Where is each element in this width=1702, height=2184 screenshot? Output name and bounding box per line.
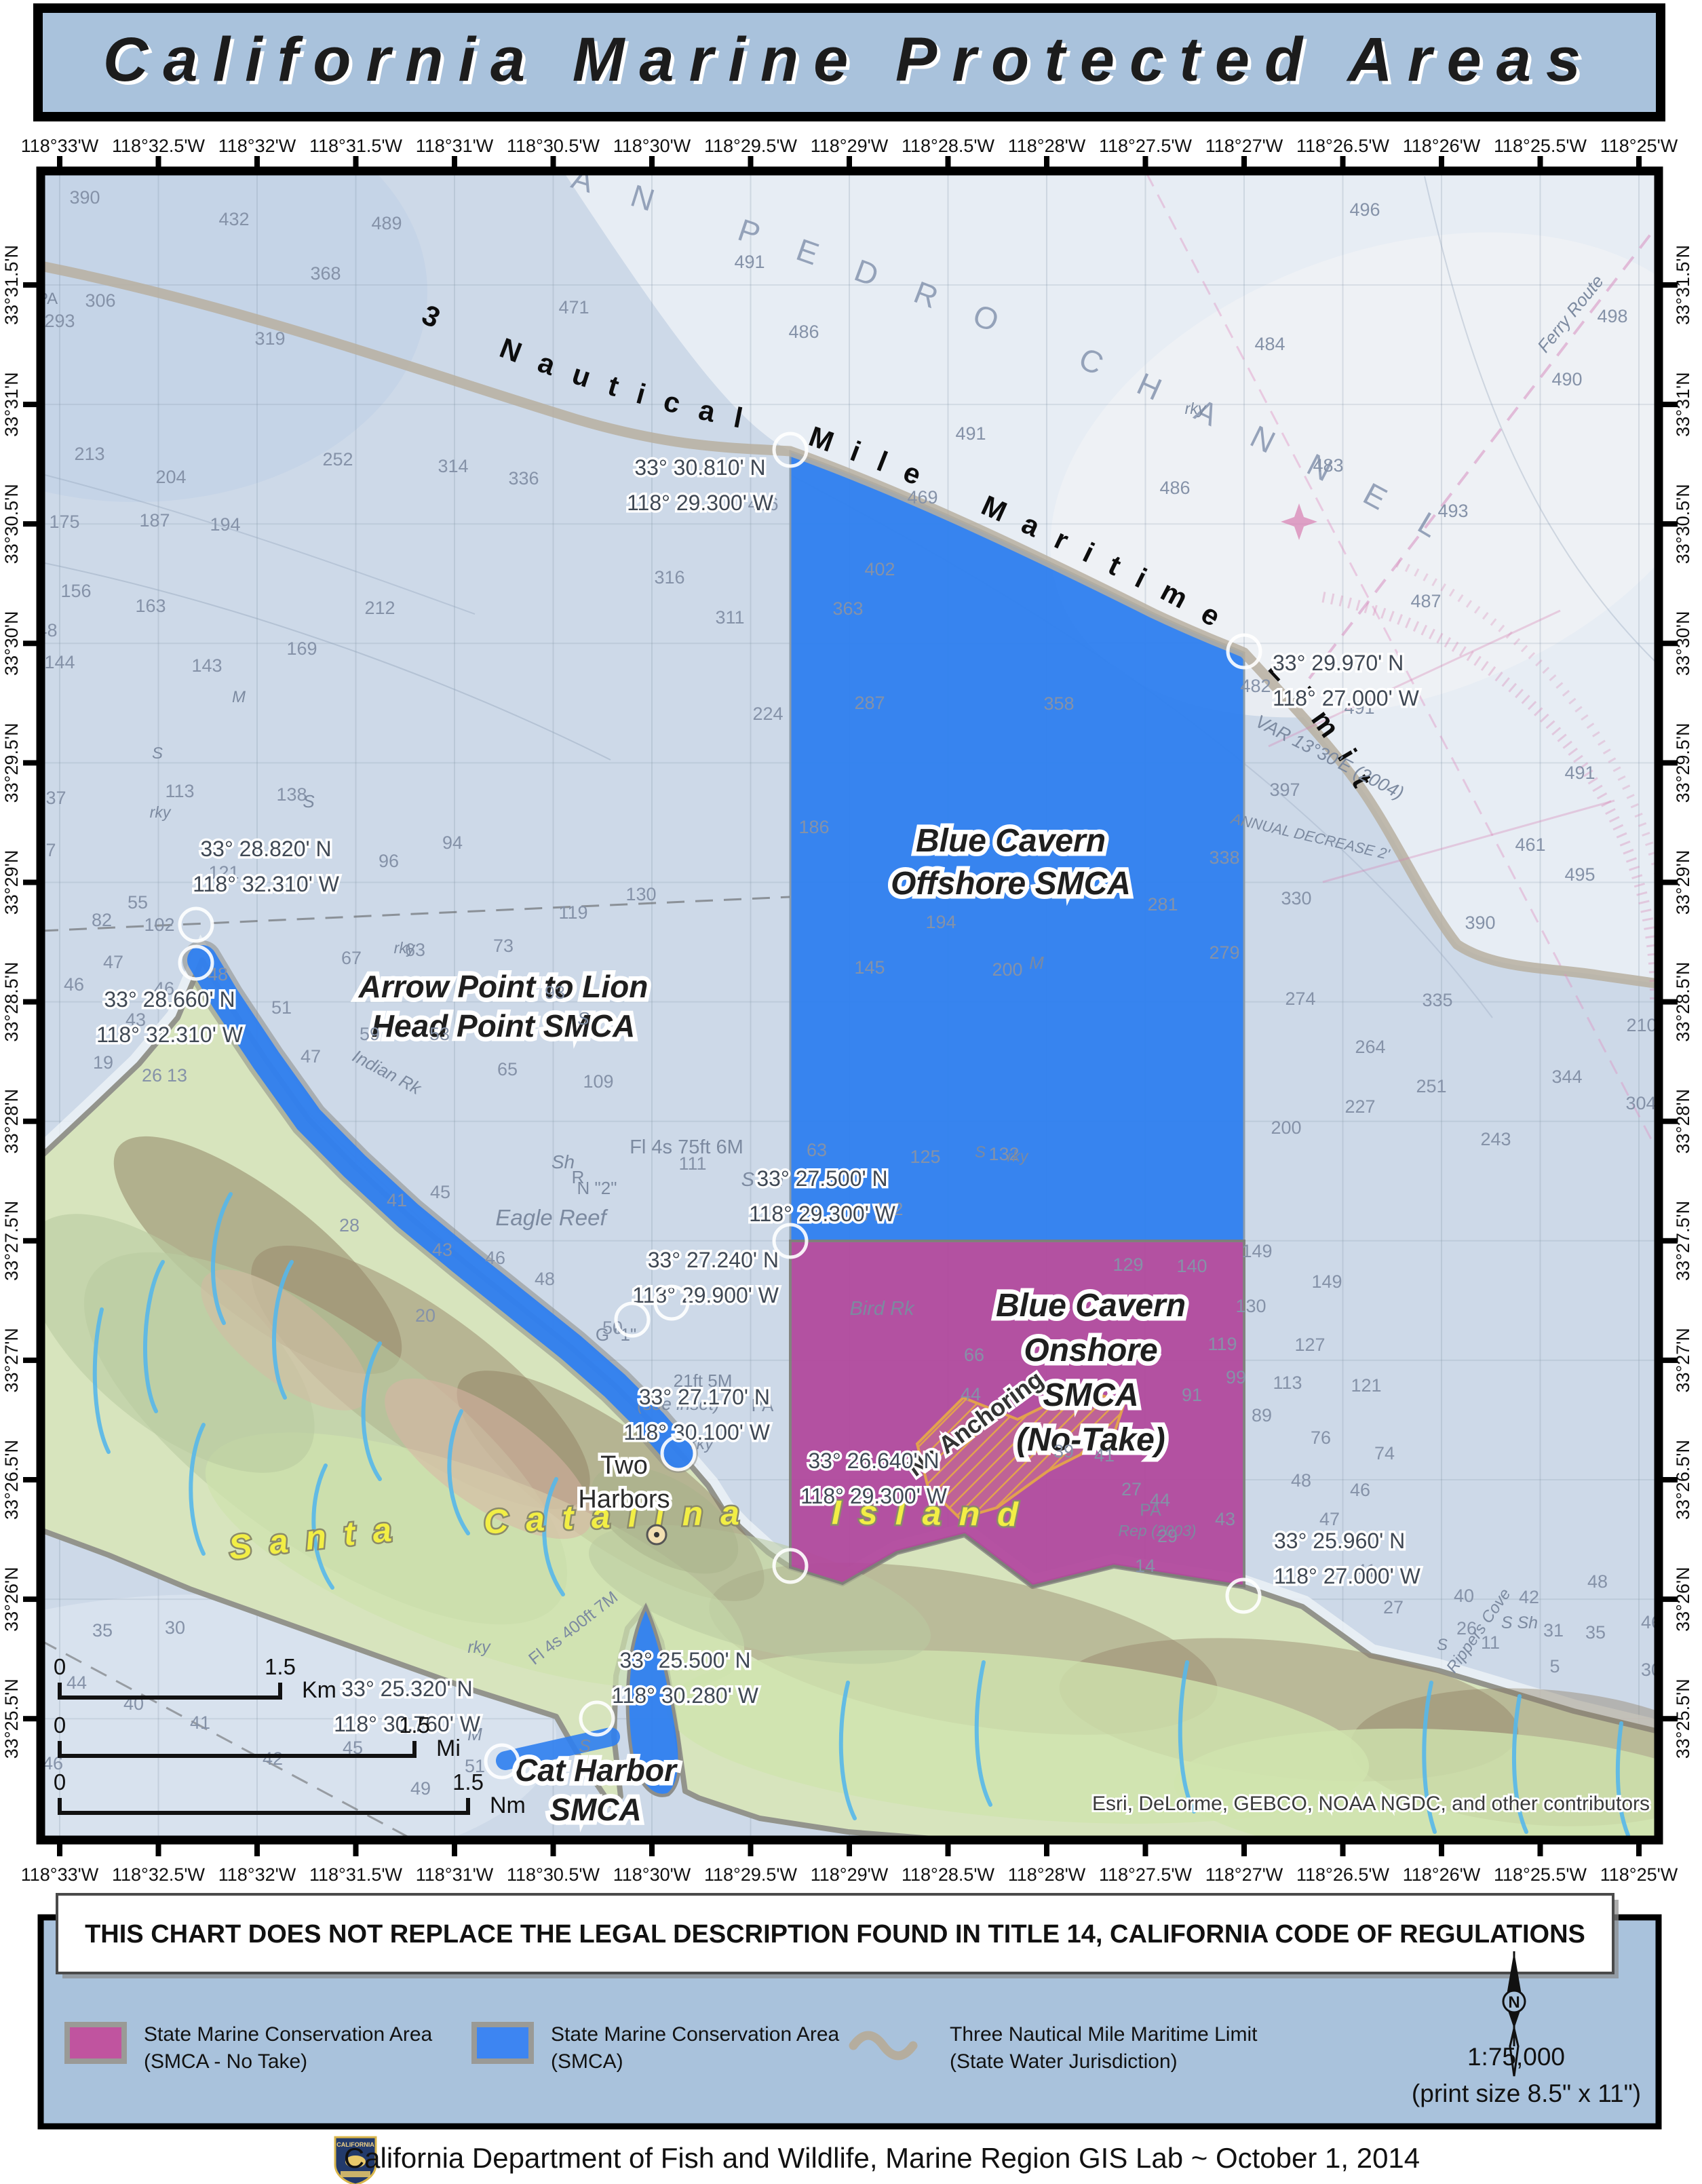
sounding-label: 486 <box>1159 478 1190 498</box>
chart-note-label: S <box>1437 1636 1448 1654</box>
sounding-label: 335 <box>1422 990 1452 1010</box>
lon-tick-top <box>1636 156 1642 172</box>
chart-note-label: S <box>579 1736 591 1756</box>
sounding-label: 99 <box>1226 1367 1246 1387</box>
sounding-label: 287 <box>854 693 885 713</box>
sounding-label: 19 <box>93 1052 113 1073</box>
sounding-label: 31 <box>1543 1620 1564 1641</box>
sounding-label: 53 <box>429 1024 450 1044</box>
sounding-label: 493 <box>1437 501 1468 521</box>
scalebar-value-label: 1.5 <box>399 1712 430 1738</box>
legend-item2-line1: State Marine Conservation Area <box>551 2023 840 2046</box>
lat-tick-left <box>23 760 41 765</box>
sounding-label: 130 <box>625 884 656 904</box>
smca-swatch-icon <box>477 2027 528 2058</box>
sounding-label: 293 <box>44 311 75 331</box>
sounding-label: 91 <box>1182 1385 1202 1405</box>
sounding-label: 316 <box>654 567 684 588</box>
sounding-label: 461 <box>1515 835 1545 855</box>
lat-tick-right <box>1660 282 1678 288</box>
sounding-label: 127 <box>1294 1335 1325 1355</box>
lon-tick-bottom <box>551 1839 556 1856</box>
sounding-label: 344 <box>1551 1067 1582 1087</box>
sounding-label: 41 <box>387 1190 407 1210</box>
sounding-label: 274 <box>1285 989 1315 1009</box>
lon-label-top: 118°25'W <box>1600 136 1678 156</box>
chart-note-label: Fl 4s 75ft 6M <box>630 1136 743 1158</box>
chart-note-label: Eagle Reef <box>495 1205 608 1230</box>
lon-tick-bottom <box>57 1839 62 1856</box>
sounding-label: 46 <box>485 1248 505 1268</box>
lon-label-top: 118°32'W <box>218 136 296 156</box>
lon-tick-bottom <box>254 1839 260 1856</box>
scalebar-value-label: 1.5 <box>265 1654 296 1679</box>
lon-label-bottom: 118°28'W <box>1008 1864 1086 1885</box>
lon-label-top: 118°30'W <box>613 136 691 156</box>
scalebar-unit-label: Km <box>302 1677 336 1703</box>
chart-note-label: S <box>975 1143 986 1162</box>
chart-note-label: rky <box>394 939 416 957</box>
lat-label-left: 33°26.5'N <box>1 1440 22 1520</box>
lon-label-bottom: 118°26'W <box>1403 1864 1481 1885</box>
offshore-label-line1: Blue Cavern <box>916 823 1106 859</box>
legend-item3-line1: Three Nautical Mile Maritime Limit <box>950 2023 1258 2046</box>
lat-tick-right <box>1660 880 1678 885</box>
sounding-label: 51 <box>271 997 292 1018</box>
lon-label-bottom: 118°27'W <box>1205 1864 1283 1885</box>
lon-label-top: 118°29.5'W <box>704 136 798 156</box>
sounding-label: 47 <box>1319 1509 1340 1529</box>
sounding-label: 145 <box>854 957 885 978</box>
sounding-label: 358 <box>1043 693 1074 714</box>
sounding-label: 306 <box>85 290 115 311</box>
scalebar-value-label: 1.5 <box>452 1769 484 1795</box>
chart-note-label: S <box>152 744 163 763</box>
lon-tick-bottom <box>1636 1839 1642 1856</box>
lon-tick-top <box>1340 156 1346 172</box>
sounding-label: 264 <box>1355 1037 1385 1057</box>
legend-item1-line2: (SMCA - No Take) <box>144 2050 307 2073</box>
sounding-label: 281 <box>1147 894 1178 915</box>
lon-tick-top <box>847 156 852 172</box>
lon-label-top: 118°26.5'W <box>1296 136 1390 156</box>
sounding-label: 194 <box>210 514 240 535</box>
lat-tick-right <box>1660 640 1678 646</box>
lon-tick-bottom <box>1340 1839 1346 1856</box>
sounding-label: 336 <box>508 468 539 488</box>
lon-tick-bottom <box>353 1839 359 1856</box>
lon-tick-top <box>1044 156 1049 172</box>
sounding-label: 30 <box>165 1617 185 1638</box>
lat-label-left: 33°29.5'N <box>1 723 22 803</box>
lat-label-left: 33°30'N <box>1 611 22 676</box>
sounding-label: 42 <box>263 1748 283 1769</box>
sounding-label: 67 <box>341 948 362 968</box>
sounding-label: 397 <box>1269 780 1300 800</box>
title-bar: California Marine Protected Areas Califo… <box>38 8 1661 117</box>
sounding-label: 44 <box>961 1384 981 1404</box>
sounding-label: 27 <box>1121 1479 1142 1499</box>
sounding-label: 319 <box>254 328 285 349</box>
sounding-label: 27 <box>1383 1597 1404 1617</box>
sounding-label: 102 <box>144 915 174 935</box>
sounding-label: 338 <box>1209 847 1239 868</box>
sounding-label: 194 <box>925 912 956 932</box>
lon-label-top: 118°28'W <box>1008 136 1086 156</box>
sounding-label: 113 <box>1273 1373 1302 1393</box>
sounding-label: 491 <box>955 423 986 444</box>
sounding-label: 490 <box>1551 369 1582 389</box>
sounding-label: 46 <box>1350 1480 1370 1500</box>
scalebar-unit-label: Nm <box>490 1793 526 1818</box>
lon-tick-top <box>452 156 457 172</box>
chart-note-label: rky <box>467 1638 491 1657</box>
lat-label-left: 33°26'N <box>1 1567 22 1632</box>
sounding-label: 252 <box>322 449 353 470</box>
sounding-label: 89 <box>1252 1405 1272 1425</box>
sounding-label: 66 <box>964 1345 984 1365</box>
sounding-label: 163 <box>135 596 166 616</box>
sounding-label: 35 <box>1585 1622 1606 1643</box>
lat-tick-left <box>23 402 41 407</box>
lon-tick-top <box>1439 156 1444 172</box>
sounding-label: 119 <box>558 902 587 923</box>
lon-label-top: 118°33'W <box>21 136 99 156</box>
arrow-point-label-line1: Arrow Point to Lion <box>358 969 649 1004</box>
lon-tick-top <box>1143 156 1148 172</box>
sounding-label: 48 <box>535 1269 555 1289</box>
chart-note-label: R <box>572 1167 585 1187</box>
legend-item3-line2: (State Water Jurisdiction) <box>950 2050 1178 2073</box>
lat-label-left: 33°27.5'N <box>1 1201 22 1281</box>
sounding-label: 47 <box>301 1046 321 1067</box>
legend-item2-line2: (SMCA) <box>551 2050 623 2073</box>
sounding-label: 121 <box>1351 1375 1381 1396</box>
lon-label-bottom: 118°25.5'W <box>1494 1864 1587 1885</box>
sounding-label: 491 <box>1564 763 1595 783</box>
sounding-label: 41 <box>1094 1445 1115 1465</box>
lon-tick-bottom <box>1439 1839 1444 1856</box>
sounding-label: 200 <box>992 959 1022 980</box>
sounding-label: 28 <box>339 1215 360 1235</box>
lat-tick-right <box>1660 1358 1678 1363</box>
lon-label-bottom: 118°32.5'W <box>112 1864 206 1885</box>
sounding-label: 129 <box>1113 1254 1143 1275</box>
sounding-label: 495 <box>1564 864 1595 885</box>
sounding-label: 471 <box>558 297 589 318</box>
attribution-label: Esri, DeLorme, GEBCO, NOAA NGDC, and oth… <box>1092 1793 1650 1815</box>
lat-tick-left <box>23 521 41 526</box>
sounding-label: 5 <box>1549 1656 1560 1677</box>
sounding-label: 330 <box>1281 888 1311 908</box>
lat-label-left: 33°28'N <box>1 1089 22 1154</box>
sounding-label: 20 <box>415 1305 436 1326</box>
sounding-label: 59 <box>360 1024 380 1044</box>
chart-note-label: M <box>1029 953 1044 973</box>
sounding-label: 204 <box>155 467 186 487</box>
sounding-label: 149 <box>1241 1241 1272 1261</box>
lat-tick-left <box>23 880 41 885</box>
lon-tick-top <box>156 156 161 172</box>
lon-tick-top <box>649 156 655 172</box>
sounding-label: 63 <box>807 1140 827 1160</box>
sounding-label: 26 <box>142 1065 162 1086</box>
lon-tick-top <box>353 156 359 172</box>
lon-label-top: 118°29'W <box>811 136 889 156</box>
sounding-label: 49 <box>410 1778 431 1799</box>
lon-tick-bottom <box>452 1839 457 1856</box>
scalebar-unit-label: Mi <box>436 1736 461 1761</box>
lon-label-bottom: 118°31'W <box>416 1864 494 1885</box>
lon-label-bottom: 118°29'W <box>811 1864 889 1885</box>
lat-tick-right <box>1660 402 1678 407</box>
sounding-label: 143 <box>191 655 222 676</box>
lat-label-left: 33°30.5'N <box>1 484 22 564</box>
sounding-label: 76 <box>1311 1428 1331 1448</box>
legend-panel: THIS CHART DOES NOT REPLACE THE LEGAL DE… <box>41 1894 1659 2126</box>
sounding-label: 109 <box>583 1071 613 1092</box>
onshore-label-line1: Blue Cavern <box>996 1288 1186 1324</box>
sounding-label: 200 <box>1271 1117 1301 1138</box>
chart-note-label: S Sh <box>1501 1613 1538 1632</box>
lon-tick-bottom <box>946 1839 951 1856</box>
chart-note-label: Rep (2003) <box>1118 1522 1196 1539</box>
sounding-label: 482 <box>1240 676 1271 696</box>
sounding-label: 487 <box>1410 591 1441 611</box>
sounding-label: 119 <box>1207 1334 1237 1354</box>
lon-tick-top <box>1538 156 1543 172</box>
sounding-label: 489 <box>371 213 402 233</box>
mpa-chart-page: California Marine Protected Areas Califo… <box>0 0 1702 2184</box>
offshore-label-line2: Offshore SMCA <box>891 866 1131 902</box>
lon-tick-bottom <box>748 1839 754 1856</box>
sounding-label: 390 <box>1465 913 1495 933</box>
sounding-label: 14 <box>1135 1556 1155 1576</box>
lon-label-top: 118°27.5'W <box>1099 136 1193 156</box>
sounding-label: 44 <box>66 1672 87 1693</box>
lon-tick-bottom <box>649 1839 655 1856</box>
lon-label-bottom: 118°30.5'W <box>507 1864 600 1885</box>
lat-tick-left <box>23 1596 41 1602</box>
lat-label-left: 33°31'N <box>1 372 22 437</box>
lon-label-bottom: 118°25'W <box>1600 1864 1678 1885</box>
marine-protected-areas-map: California Marine Protected Areas Califo… <box>0 0 1702 2184</box>
lon-label-top: 118°31'W <box>416 136 494 156</box>
cat-harbor-label-line2: SMCA <box>549 1792 641 1827</box>
sounding-label: 213 <box>74 444 104 464</box>
chart-note-label: Bird Rk <box>849 1298 915 1320</box>
sounding-label: 368 <box>310 263 341 284</box>
sounding-label: 224 <box>752 704 783 724</box>
lon-label-bottom: 118°30'W <box>613 1864 691 1885</box>
sounding-label: 491 <box>734 252 765 272</box>
sounding-label: 55 <box>128 892 148 913</box>
sounding-label: 483 <box>1313 455 1343 476</box>
chart-note-label: PA <box>1140 1501 1161 1520</box>
sounding-label: 144 <box>44 652 75 672</box>
lon-tick-top <box>551 156 556 172</box>
lon-tick-bottom <box>1538 1839 1543 1856</box>
lon-tick-top <box>1241 156 1247 172</box>
chart-note-label: rky <box>150 803 172 821</box>
sounding-label: 47 <box>103 952 123 972</box>
sounding-label: 96 <box>379 851 399 871</box>
lon-label-bottom: 118°28.5'W <box>902 1864 995 1885</box>
sounding-label: 311 <box>715 607 744 628</box>
sounding-label: 35 <box>92 1620 113 1641</box>
lon-tick-bottom <box>1143 1839 1148 1856</box>
sounding-label: 187 <box>139 510 170 531</box>
sounding-label: 156 <box>60 581 91 601</box>
sounding-label: 498 <box>1597 306 1627 326</box>
town-symbol-dot <box>654 1532 659 1537</box>
footer: CALIFORNIA California Department of Fish… <box>335 2137 1420 2184</box>
lat-tick-right <box>1660 521 1678 526</box>
sounding-label: 486 <box>788 322 819 342</box>
cat-harbor-label-line1: Cat Harbor <box>515 1752 678 1788</box>
lon-tick-bottom <box>156 1839 161 1856</box>
lat-tick-right <box>1660 1238 1678 1244</box>
sounding-label: 39 <box>1053 1441 1074 1461</box>
chart-note-label: S <box>303 791 315 811</box>
sounding-label: 82 <box>92 910 112 930</box>
sounding-label: 125 <box>910 1147 940 1167</box>
sounding-label: 169 <box>286 638 317 659</box>
lat-label-left: 33°31.5'N <box>1 245 22 325</box>
page-title: California Marine Protected Areas <box>103 25 1595 94</box>
lat-tick-right <box>1660 999 1678 1005</box>
lon-label-top: 118°31.5'W <box>309 136 403 156</box>
lon-label-top: 118°27'W <box>1205 136 1283 156</box>
onshore-label-line2: Onshore <box>1024 1333 1157 1368</box>
lat-tick-left <box>23 640 41 646</box>
sounding-label: 40 <box>1454 1586 1474 1606</box>
two-harbors-line2: Harbors <box>578 1485 670 1514</box>
lon-label-bottom: 118°29.5'W <box>704 1864 798 1885</box>
map-scale-text: 1:75,000 <box>1467 2043 1565 2071</box>
lon-label-top: 118°26'W <box>1403 136 1481 156</box>
scalebar-zero-label: 0 <box>54 1712 66 1738</box>
scalebar-zero-label: 0 <box>54 1769 66 1795</box>
sounding-label: 304 <box>1625 1093 1656 1113</box>
lat-tick-right <box>1660 1477 1678 1482</box>
chart-note-label: rky <box>1185 400 1207 417</box>
lon-label-top: 118°30.5'W <box>507 136 600 156</box>
lat-tick-left <box>23 1238 41 1244</box>
lon-label-bottom: 118°32'W <box>218 1864 296 1885</box>
lat-tick-left <box>23 999 41 1005</box>
sounding-label: 113 <box>165 781 194 801</box>
smca-no-take-swatch-icon <box>70 2027 121 2058</box>
sounding-label: 496 <box>1349 199 1380 220</box>
sounding-label: 243 <box>1480 1129 1511 1149</box>
sounding-label: 74 <box>1374 1443 1395 1463</box>
legend-item1-line1: State Marine Conservation Area <box>144 2023 433 2046</box>
lon-label-top: 118°25.5'W <box>1494 136 1587 156</box>
lon-tick-top <box>946 156 951 172</box>
lat-label-left: 33°27'N <box>1 1328 22 1393</box>
sounding-label: 94 <box>442 832 463 853</box>
lon-tick-bottom <box>1241 1839 1247 1856</box>
lat-tick-left <box>23 1119 41 1124</box>
lon-tick-top <box>254 156 260 172</box>
sounding-label: 175 <box>49 512 79 532</box>
chart-note-label: M <box>232 688 246 706</box>
sounding-label: 363 <box>832 598 863 619</box>
onshore-label-line4: (No-Take) <box>1016 1422 1165 1458</box>
lat-label-left: 33°25.5'N <box>1 1679 22 1759</box>
lat-label-left: 33°28.5'N <box>1 962 22 1042</box>
sounding-label: 130 <box>1235 1296 1266 1316</box>
lat-tick-left <box>23 1716 41 1721</box>
chart-note-label: rky <box>1007 1147 1029 1165</box>
lon-tick-top <box>748 156 754 172</box>
sounding-label: 402 <box>864 559 895 579</box>
sounding-label: 48 <box>1291 1470 1311 1491</box>
lat-tick-right <box>1660 760 1678 765</box>
lat-tick-right <box>1660 1119 1678 1124</box>
lat-tick-right <box>1660 1596 1678 1602</box>
lon-tick-bottom <box>1044 1839 1049 1856</box>
sounding-label: 314 <box>438 456 468 476</box>
sounding-label: 43 <box>1215 1509 1235 1529</box>
sounding-label: 46 <box>64 974 84 995</box>
sounding-label: 140 <box>1176 1256 1207 1276</box>
sounding-label: 469 <box>907 487 937 507</box>
lat-label-left: 33°29'N <box>1 850 22 915</box>
sounding-label: 186 <box>798 817 829 837</box>
lon-tick-top <box>57 156 62 172</box>
scalebar-zero-label: 0 <box>54 1654 66 1679</box>
lon-label-bottom: 118°33'W <box>21 1864 99 1885</box>
lon-tick-bottom <box>847 1839 852 1856</box>
sounding-label: 210 <box>1626 1015 1657 1035</box>
lon-label-bottom: 118°27.5'W <box>1099 1864 1193 1885</box>
lat-tick-right <box>1660 1716 1678 1721</box>
sounding-label: 41 <box>190 1712 210 1733</box>
disclaimer-text: THIS CHART DOES NOT REPLACE THE LEGAL DE… <box>85 1920 1585 1949</box>
sounding-label: 42 <box>1519 1587 1539 1607</box>
two-harbors-line1: Two <box>600 1451 648 1480</box>
lon-label-bottom: 118°31.5'W <box>309 1864 403 1885</box>
map-canvas: SAN PEDRO CHANNEL 3 Nautical Mile Mariti… <box>0 0 1702 1881</box>
sounding-label: 484 <box>1254 334 1285 354</box>
sounding-label: 251 <box>1416 1076 1446 1096</box>
sounding-label: 93 <box>545 982 565 1003</box>
north-arrow-n-label: N <box>1508 1993 1520 2012</box>
onshore-label-line3: SMCA <box>1043 1377 1138 1413</box>
arrow-point-label-line2: Head Point SMCA <box>372 1008 635 1043</box>
footer-credit-text: California Department of Fish and Wildli… <box>344 2142 1420 2174</box>
lon-label-bottom: 118°26.5'W <box>1296 1864 1390 1885</box>
lat-tick-left <box>23 282 41 288</box>
sounding-label: 13 <box>167 1065 187 1086</box>
lat-tick-left <box>23 1477 41 1482</box>
sounding-label: 227 <box>1345 1096 1375 1117</box>
sounding-label: 279 <box>1209 942 1239 963</box>
sounding-label: 149 <box>1311 1271 1342 1292</box>
sounding-label: 48 <box>1587 1571 1608 1592</box>
lon-label-top: 118°32.5'W <box>112 136 206 156</box>
sounding-label: 43 <box>432 1240 452 1260</box>
sounding-label: 212 <box>364 598 395 618</box>
sounding-label: 45 <box>430 1182 450 1202</box>
print-size-text: (print size 8.5" x 11") <box>1412 2080 1641 2107</box>
sounding-label: 432 <box>218 209 249 229</box>
lat-tick-left <box>23 1358 41 1363</box>
sounding-label: 73 <box>493 936 514 956</box>
sounding-label: 390 <box>69 187 100 208</box>
